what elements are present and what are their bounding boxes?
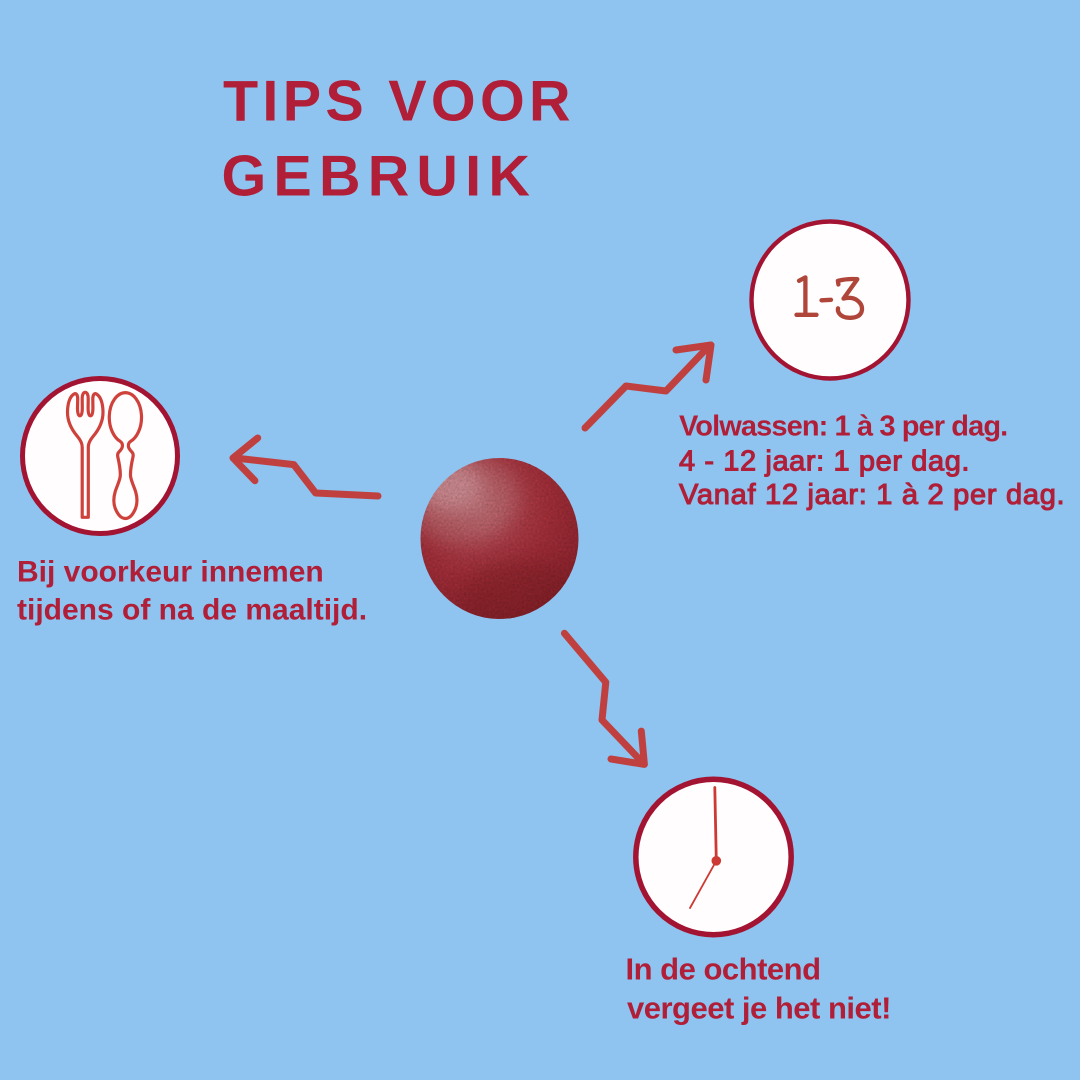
svg-text:GEBRUIK: GEBRUIK [222,145,538,209]
svg-text:Volwassen: 1 à 3 per dag.: Volwassen: 1 à 3 per dag. [679,411,1007,443]
svg-text:vergeet je het niet!: vergeet je het niet! [627,991,891,1026]
svg-text:In de ochtend: In de ochtend [626,952,821,987]
svg-text:Bij voorkeur innemen: Bij voorkeur innemen [17,556,324,589]
svg-text:4 - 12 jaar: 1 per dag.: 4 - 12 jaar: 1 per dag. [679,446,970,478]
svg-text:TIPS VOOR: TIPS VOOR [223,70,575,134]
svg-text:Vanaf 12 jaar: 1 à 2 per dag.: Vanaf 12 jaar: 1 à 2 per dag. [679,479,1065,511]
svg-text:tijdens of na de maaltijd.: tijdens of na de maaltijd. [17,594,367,627]
